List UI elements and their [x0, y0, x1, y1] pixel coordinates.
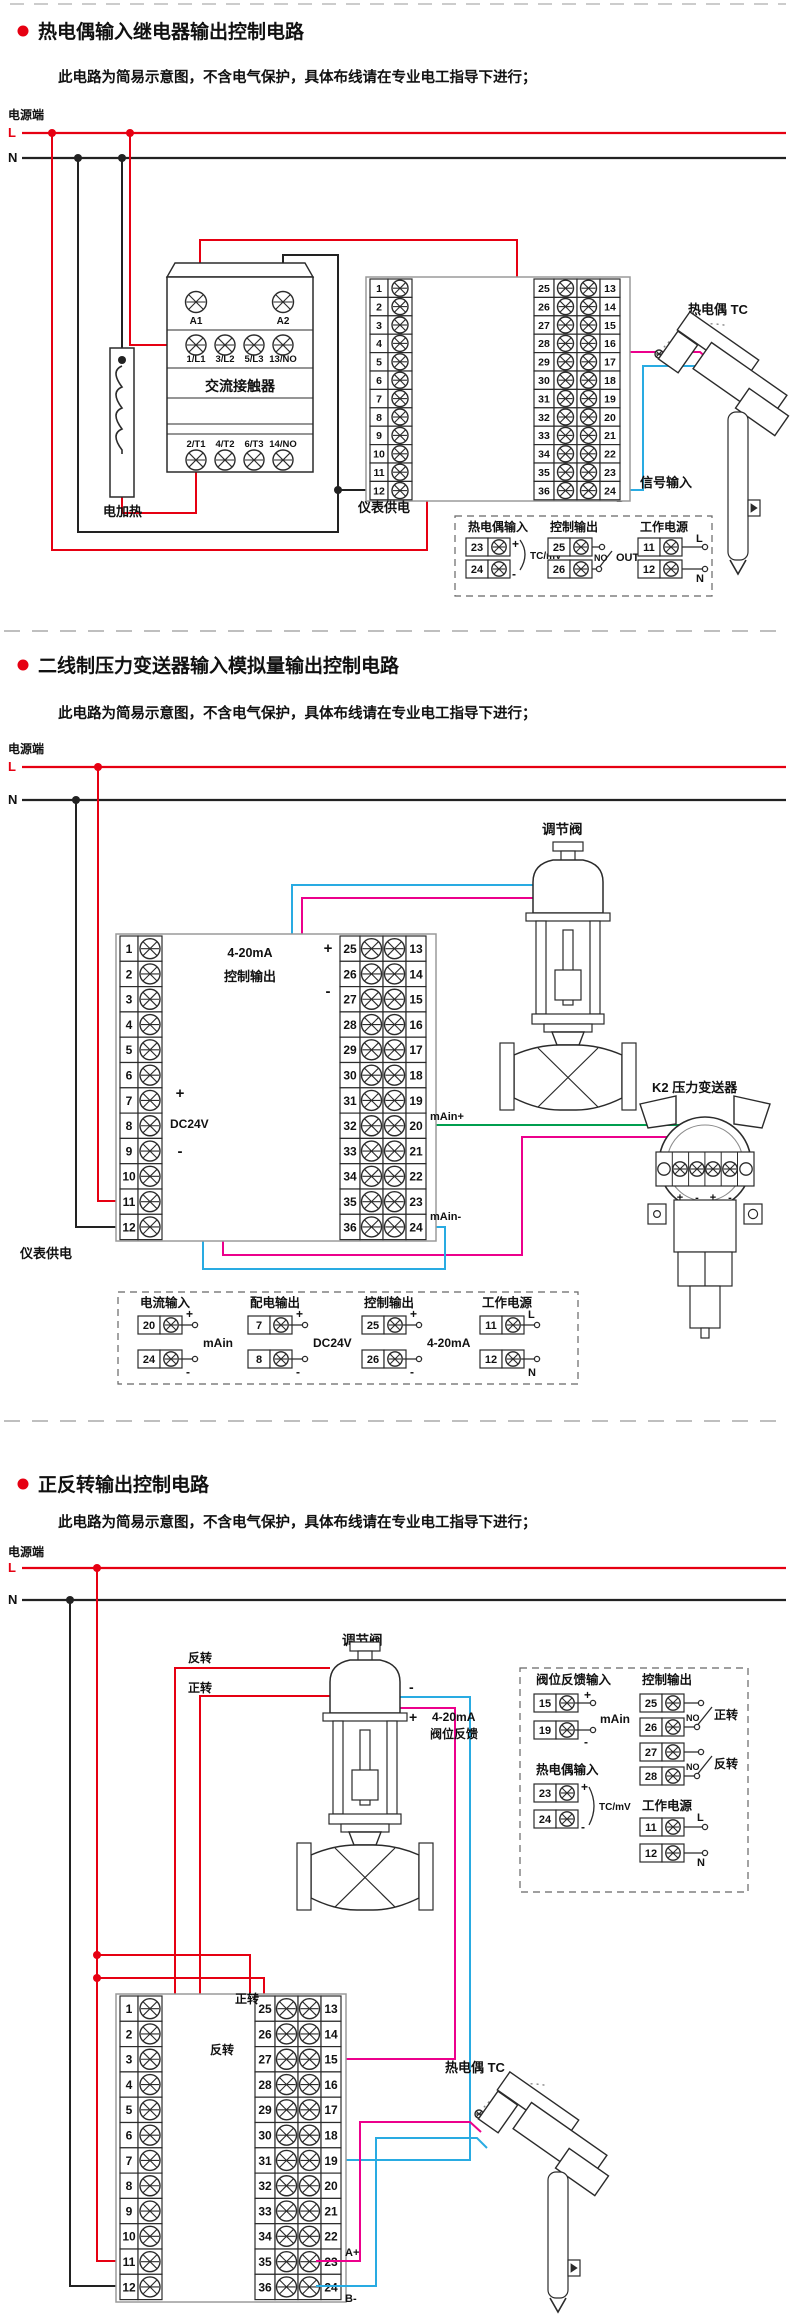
terminal-number: 36 — [343, 1220, 357, 1234]
l-label: L — [696, 533, 703, 545]
section-subtitle: 此电路为简易示意图，不含电气保护，具体布线请在专业电工指导下进行； — [58, 704, 537, 722]
wire-end-terminal — [702, 566, 707, 571]
main-plus-label: mAin+ — [430, 1111, 464, 1123]
detail-tag: mAin — [600, 1712, 630, 1726]
wire-end-terminal — [694, 1724, 699, 1729]
wire-end-terminal — [590, 1727, 595, 1732]
terminal-screw-icon — [581, 299, 597, 315]
terminal-screw-icon — [277, 2252, 297, 2272]
wire-end-terminal — [698, 1749, 703, 1754]
terminal-number: 8 — [256, 1354, 262, 1366]
terminal-number: 19 — [324, 2154, 338, 2168]
terminal-number: 17 — [324, 2103, 338, 2117]
polarity-label: + — [296, 1307, 303, 1321]
power-source-label: 电源端 — [8, 107, 44, 122]
polarity-label: - — [409, 1679, 414, 1695]
n-label: N — [696, 573, 704, 585]
no-label: NO — [686, 1713, 700, 1723]
terminal-number: 2 — [126, 2027, 133, 2041]
detail-tag: mAin — [203, 1336, 233, 1350]
terminal-number: 29 — [538, 357, 550, 369]
terminal-screw-icon — [277, 2277, 297, 2297]
terminal-number: 29 — [343, 1043, 357, 1057]
terminal-number: 26 — [538, 301, 550, 313]
terminal-screw-icon — [140, 2024, 160, 2044]
terminal-number: 23 — [471, 542, 483, 554]
tc-probe — [548, 2172, 568, 2298]
n-label: N — [697, 1857, 705, 1869]
terminal-screw-icon — [558, 354, 574, 370]
terminal-number: 35 — [343, 1195, 357, 1209]
terminal-screw-icon — [385, 964, 405, 984]
terminal-number: 15 — [539, 1698, 551, 1710]
valve-handle — [553, 842, 583, 851]
terminal-number: 13 — [324, 2002, 338, 2016]
terminal-number: 1 — [376, 283, 382, 295]
detail-group-title: 控制输出 — [642, 1672, 692, 1687]
l-label: L — [528, 1309, 535, 1321]
terminal-number: 14 — [604, 301, 616, 313]
terminal-number: 12 — [485, 1354, 497, 1366]
terminal-screw-icon — [392, 427, 408, 443]
terminal-number: 26 — [367, 1354, 379, 1366]
terminal-screw-icon — [277, 2100, 297, 2120]
wire-end-terminal — [702, 1850, 707, 1855]
polarity-label: + — [176, 1085, 185, 1102]
terminal-screw-icon — [300, 1999, 320, 2019]
b-minus-label: B- — [345, 2293, 357, 2305]
tc-probe-tip — [730, 560, 746, 574]
terminal-screw-icon — [300, 2049, 320, 2069]
terminal-screw-icon — [492, 540, 506, 554]
wiring-diagram-page: 热电偶输入继电器输出控制电路此电路为简易示意图，不含电气保护，具体布线请在专业电… — [0, 0, 790, 2323]
terminal-screw-icon — [664, 540, 678, 554]
terminal-screw-icon — [388, 1352, 402, 1366]
terminal-screw-icon — [666, 1769, 680, 1783]
terminal-screw-icon — [666, 1846, 680, 1860]
terminal-number: 19 — [409, 1094, 423, 1108]
terminal-number: 22 — [324, 2230, 338, 2244]
n-label: N — [528, 1367, 536, 1379]
terminal-screw-icon — [140, 2150, 160, 2170]
terminal-number: 28 — [645, 1771, 657, 1783]
section-title: 正反转输出控制电路 — [38, 1473, 210, 1496]
valve-actuator-dome — [330, 1660, 400, 1713]
tc-label: 热电偶 TC — [688, 302, 749, 317]
terminal-number: 30 — [258, 2128, 272, 2142]
wire-end-terminal — [416, 1356, 421, 1361]
section-bullet-icon — [18, 1479, 29, 1490]
terminal-number: 31 — [343, 1094, 357, 1108]
no-label: NO — [686, 1762, 700, 1772]
terminal-number: 17 — [604, 357, 616, 369]
terminal-number: 36 — [538, 485, 550, 497]
terminal-number: 13 — [409, 942, 423, 956]
section-title: 二线制压力变送器输入模拟量输出控制电路 — [38, 654, 400, 677]
valve-flange-left — [297, 1843, 311, 1910]
terminal-screw-icon — [186, 450, 206, 470]
polarity-label: + — [581, 1780, 588, 1794]
terminal-number: 6 — [126, 1068, 133, 1082]
polarity-label: + — [584, 1688, 591, 1702]
line-l-label: L — [8, 1560, 16, 1575]
polarity-label: - — [178, 1143, 183, 1160]
wiring-diagram: 热电偶输入继电器输出控制电路此电路为简易示意图，不含电气保护，具体布线请在专业电… — [0, 0, 790, 2323]
terminal-number: 9 — [126, 2204, 133, 2218]
dc24v-label: DC24V — [170, 1117, 209, 1131]
terminal-number: 30 — [343, 1068, 357, 1082]
terminal-screw-icon — [388, 1318, 402, 1332]
terminal-screw-icon — [362, 1166, 382, 1186]
terminal-screw-icon — [164, 1352, 178, 1366]
terminal-number: 24 — [409, 1220, 423, 1234]
terminal-number: 2 — [126, 967, 133, 981]
terminal-number: 12 — [122, 1220, 136, 1234]
terminal-number: 27 — [645, 1747, 657, 1759]
terminal-number: 12 — [373, 485, 385, 497]
terminal-number: 16 — [409, 1018, 423, 1032]
heater-box — [110, 348, 134, 497]
terminal-screw-icon — [560, 1723, 574, 1737]
terminal-screw-icon — [362, 1065, 382, 1085]
reverse-label: 反转 — [210, 2042, 234, 2057]
terminal-screw-icon — [362, 1116, 382, 1136]
polarity-label: - — [512, 567, 516, 581]
terminal-number: 33 — [538, 430, 550, 442]
terminal-screw-icon — [140, 2201, 160, 2221]
terminal-screw-icon — [385, 1116, 405, 1136]
terminal-number: 23 — [539, 1788, 551, 1800]
terminal-screw-icon — [300, 2201, 320, 2221]
terminal-screw-icon — [558, 427, 574, 443]
terminal-number: 33 — [258, 2204, 272, 2218]
terminal-number: 20 — [324, 2179, 338, 2193]
terminal-screw-icon — [140, 2252, 160, 2272]
polarity-label: + — [324, 940, 333, 957]
line-n-label: N — [8, 150, 17, 165]
terminal-number: 18 — [409, 1068, 423, 1082]
heater-junction-dot — [118, 356, 126, 364]
terminal-screw-icon — [560, 1696, 574, 1710]
terminal-number: 11 — [123, 2255, 136, 2269]
valve-yoke-right — [590, 921, 600, 1014]
terminal-number: 4 — [376, 338, 382, 350]
contactor-top — [167, 263, 313, 277]
terminal-screw-icon — [581, 317, 597, 333]
terminal-number: 20 — [143, 1320, 155, 1332]
detail-tag: DC24V — [313, 1336, 352, 1350]
terminal-screw-icon — [140, 989, 160, 1009]
terminal-screw-icon — [300, 2125, 320, 2145]
terminal-number: 34 — [538, 449, 550, 461]
terminal-screw-icon — [574, 562, 588, 576]
terminal-number: 7 — [126, 2154, 133, 2168]
polarity-label: - — [186, 1365, 190, 1379]
terminal-number: 1 — [126, 2002, 133, 2016]
detail-group-title: 工作电源 — [642, 1798, 693, 1813]
terminal-number: 11 — [373, 467, 384, 479]
terminal-screw-icon — [723, 1162, 737, 1176]
terminal-number: 23 — [604, 467, 616, 479]
valve-spring-block — [352, 1770, 378, 1800]
relay-function-label: 反转 — [714, 1756, 738, 1771]
terminal-screw-icon — [140, 1141, 160, 1161]
terminal-screw-icon — [140, 1166, 160, 1186]
contactor-coil-label: A1 — [190, 316, 203, 327]
terminal-number: 24 — [471, 564, 484, 576]
power-source-label: 电源端 — [8, 1544, 44, 1559]
valve-neck — [552, 1032, 584, 1045]
tx-wing-right — [734, 1096, 770, 1128]
polarity-label: - — [581, 1820, 585, 1834]
terminal-number: 28 — [343, 1018, 357, 1032]
terminal-number: 5 — [376, 357, 382, 369]
terminal-screw-icon — [140, 1192, 160, 1212]
terminal-screw-icon — [558, 409, 574, 425]
terminal-screw-icon — [558, 391, 574, 407]
terminal-screw-icon — [385, 989, 405, 1009]
terminal-number: 5 — [126, 1043, 133, 1057]
terminal-screw-icon — [362, 1090, 382, 1110]
terminal-screw-icon — [385, 1192, 405, 1212]
reverse-label: 反转 — [188, 1650, 212, 1665]
terminal-screw-icon — [392, 335, 408, 351]
tx-wing-left — [640, 1096, 676, 1128]
l-label: L — [697, 1812, 704, 1824]
terminal-number: 25 — [343, 942, 357, 956]
terminal-screw-icon — [581, 335, 597, 351]
valve-bottom-plate — [532, 1014, 604, 1024]
detail-group-title: 控制输出 — [364, 1295, 414, 1310]
terminal-number: 15 — [324, 2053, 338, 2067]
terminal-screw-icon — [666, 1745, 680, 1759]
terminal-number: 32 — [343, 1119, 357, 1133]
valve-spring-block — [555, 970, 581, 1000]
terminal-number: 21 — [409, 1144, 423, 1158]
terminal-number: 24 — [539, 1814, 552, 1826]
section-subtitle: 此电路为简易示意图，不含电气保护，具体布线请在专业电工指导下进行； — [58, 68, 537, 86]
terminal-screw-icon — [706, 1162, 720, 1176]
terminal-screw-icon — [392, 409, 408, 425]
terminal-screw-icon — [664, 562, 678, 576]
detail-group-title: 配电输出 — [250, 1295, 300, 1310]
terminal-number: 21 — [604, 430, 616, 442]
terminal-screw-icon — [164, 1318, 178, 1332]
polarity-label: + — [410, 1307, 417, 1321]
terminal-number: 14 — [409, 967, 423, 981]
terminal-screw-icon — [558, 299, 574, 315]
terminal-number: 7 — [256, 1320, 262, 1332]
terminal-number: 9 — [126, 1144, 133, 1158]
valve-bottom-plate2 — [544, 1024, 592, 1032]
terminal-number: 25 — [553, 542, 565, 554]
terminal-screw-icon — [506, 1352, 520, 1366]
terminal-screw-icon — [277, 2125, 297, 2145]
terminal-number: 11 — [485, 1320, 497, 1332]
tc-label: 热电偶 TC — [445, 2060, 506, 2075]
contactor-output-label: 6/T3 — [244, 439, 263, 450]
valve-label: 调节阀 — [542, 821, 583, 837]
contactor-input-label: 3/L2 — [215, 354, 234, 365]
terminal-number: 34 — [258, 2230, 272, 2244]
terminal-screw-icon — [385, 1015, 405, 1035]
tx-lug-hole — [748, 1209, 757, 1218]
terminal-screw-icon — [186, 292, 207, 313]
terminal-number: 16 — [324, 2078, 338, 2092]
valve-handle — [350, 1642, 380, 1651]
terminal-number: 23 — [409, 1195, 423, 1209]
terminal-screw-icon — [385, 1141, 405, 1161]
polarity-label: - — [296, 1365, 300, 1379]
no-label: NO — [594, 553, 608, 563]
terminal-number: 9 — [376, 430, 382, 442]
fb-name-label: 阀位反馈 — [430, 1726, 478, 1741]
terminal-screw-icon — [362, 1141, 382, 1161]
terminal-number: 27 — [258, 2053, 272, 2067]
contactor-coil-label: A2 — [277, 316, 290, 327]
terminal-number: 31 — [258, 2154, 272, 2168]
terminal-screw-icon — [558, 483, 574, 499]
polarity-label: + — [512, 537, 519, 551]
terminal-screw-icon — [385, 1065, 405, 1085]
contactor-output-label: 4/T2 — [215, 439, 234, 450]
terminal-number: 2 — [376, 301, 382, 313]
terminal-number: 11 — [643, 542, 655, 554]
terminal-screw-icon — [362, 989, 382, 1009]
valve-yoke-right — [387, 1721, 397, 1814]
forward-label: 正转 — [188, 1680, 212, 1695]
terminal-number: 29 — [258, 2103, 272, 2117]
terminal-number: 25 — [538, 283, 550, 295]
terminal-screw-icon — [186, 335, 206, 355]
terminal-screw-icon — [392, 280, 408, 296]
terminal-number: 15 — [409, 993, 423, 1007]
terminal-screw-icon — [560, 1786, 574, 1800]
terminal-screw-icon — [392, 354, 408, 370]
terminal-number: 28 — [538, 338, 550, 350]
terminal-number: 25 — [258, 2002, 272, 2016]
valve-bottom-plate — [329, 1814, 401, 1824]
polarity-label: + — [186, 1307, 193, 1321]
terminal-screw-icon — [581, 372, 597, 388]
terminal-screw-icon — [558, 280, 574, 296]
terminal-number: 26 — [258, 2027, 272, 2041]
terminal-screw-icon — [274, 1352, 288, 1366]
terminal-screw-icon — [581, 427, 597, 443]
terminal-number: 8 — [126, 2179, 133, 2193]
terminal-number: 19 — [604, 393, 616, 405]
wire-end-terminal — [534, 1322, 539, 1327]
contactor-input-label: 1/L1 — [186, 354, 206, 365]
wire-end-terminal — [599, 544, 604, 549]
terminal-screw-icon — [362, 1217, 382, 1237]
valve-flange-right — [419, 1843, 433, 1910]
terminal-number: 16 — [604, 338, 616, 350]
terminal-screw-icon — [673, 1162, 687, 1176]
polarity-label: + — [409, 1709, 417, 1725]
section-bullet-icon — [18, 660, 29, 671]
terminal-number: 10 — [373, 449, 385, 461]
detail-group-title: 阀位反馈输入 — [536, 1672, 612, 1687]
terminal-screw-icon — [392, 483, 408, 499]
wire-end-terminal — [702, 544, 707, 549]
contactor-output-label: 14/NO — [269, 439, 296, 450]
terminal-screw-icon — [574, 540, 588, 554]
terminal-screw-icon — [140, 964, 160, 984]
tc-probe — [728, 412, 748, 560]
terminal-screw-icon — [362, 939, 382, 959]
terminal-screw-icon — [392, 464, 408, 480]
terminal-number: 10 — [122, 1170, 136, 1184]
terminal-number: 1 — [126, 942, 133, 956]
terminal-screw-icon — [277, 2075, 297, 2095]
detail-group-title: 电流输入 — [140, 1295, 191, 1310]
terminal-screw-icon — [300, 2100, 320, 2120]
terminal-screw-icon — [666, 1820, 680, 1834]
terminal-number: 26 — [645, 1722, 657, 1734]
terminal-number: 12 — [643, 564, 655, 576]
terminal-screw-icon — [385, 939, 405, 959]
line-n-label: N — [8, 792, 17, 807]
terminal-screw-icon — [506, 1318, 520, 1332]
terminal-number: 12 — [122, 2280, 136, 2294]
terminal-number: 25 — [367, 1320, 379, 1332]
terminal-screw-icon — [362, 1192, 382, 1212]
line-n-label: N — [8, 1592, 17, 1607]
terminal-number: 11 — [123, 1195, 136, 1209]
valve-bottom-plate2 — [341, 1824, 389, 1832]
terminal-screw-icon — [581, 409, 597, 425]
valve-flange — [526, 913, 610, 921]
terminal-number: 21 — [324, 2204, 338, 2218]
wire-end-terminal — [694, 1773, 699, 1778]
terminal-screw-icon — [300, 2176, 320, 2196]
terminal-screw-icon — [300, 2150, 320, 2170]
meter-power-label: 仪表供电 — [19, 1246, 72, 1261]
terminal-screw-icon — [392, 391, 408, 407]
terminal-screw-icon — [581, 483, 597, 499]
terminal-screw-icon — [277, 1999, 297, 2019]
detail-group-title: 热电偶输入 — [468, 519, 528, 534]
terminal-screw-icon — [362, 1040, 382, 1060]
terminal-number: 6 — [376, 375, 382, 387]
wire-end-terminal — [534, 1356, 539, 1361]
terminal-screw-icon — [558, 372, 574, 388]
terminal-screw-icon — [558, 464, 574, 480]
terminal-screw-icon — [392, 317, 408, 333]
terminal-screw-icon — [140, 2226, 160, 2246]
fb-range-label: 4-20mA — [432, 1710, 476, 1724]
valve-flange-right — [622, 1043, 636, 1110]
terminal-number: 6 — [126, 2128, 133, 2142]
terminal-number: 26 — [343, 967, 357, 981]
terminal-screw-icon — [274, 1318, 288, 1332]
terminal-number: 28 — [258, 2078, 272, 2092]
terminal-screw-icon — [140, 1040, 160, 1060]
terminal-screw-icon — [244, 450, 264, 470]
terminal-screw-icon — [558, 335, 574, 351]
heater-label: 电加热 — [103, 504, 142, 519]
contactor-input-label: 13/NO — [269, 354, 296, 365]
terminal-screw-icon — [690, 1162, 704, 1176]
terminal-number: 4 — [126, 1018, 133, 1032]
wire-main-plus — [394, 1125, 697, 1160]
wire-end-terminal — [302, 1356, 307, 1361]
meter-power-label: 仪表供电 — [357, 500, 410, 515]
terminal-screw-icon — [244, 335, 264, 355]
terminal-screw-icon — [581, 280, 597, 296]
terminal-number: 34 — [343, 1170, 357, 1184]
